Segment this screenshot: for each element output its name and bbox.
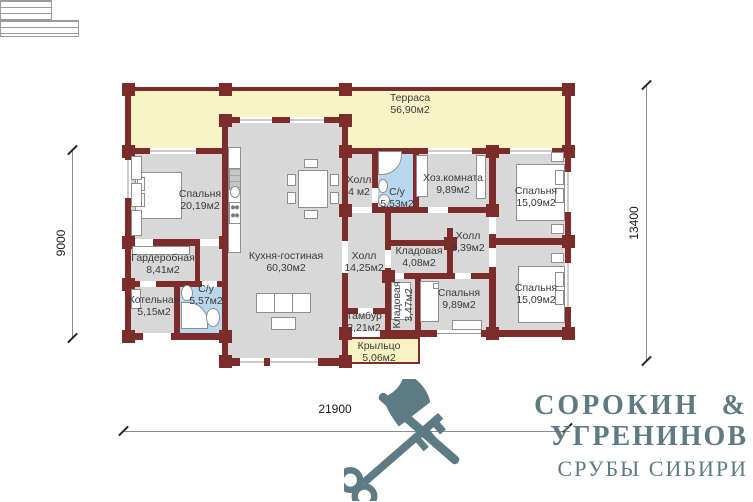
room-label-bedroom-3: Спальня9,89м2 [424,287,494,311]
log-end [219,355,232,368]
room-label-utility: Хоз.комната9,89м2 [412,172,494,196]
pillow-icon [555,170,564,185]
wall-segment [490,238,571,245]
wardrobe-icon [131,156,142,180]
dimension-line-right [646,85,647,361]
dimension-label-left: 9000 [54,220,68,266]
log-end [219,83,232,96]
room-label-boiler: Котельная5,15м2 [118,294,190,318]
room-label-storage-2: Кладовая3,47м2 [391,276,415,334]
floor-plan-drawing [0,0,753,37]
room-label-bath-2: С/у5,57м2 [186,283,226,307]
room-label-bedroom-4: Спальня15,09м2 [498,282,574,306]
brand-name-line-2: УГРЕНИНОВ [498,421,748,453]
dimension-line-left [72,150,73,338]
room-label-bedroom-2: Спальня15,09м2 [498,185,574,209]
door-opening [352,207,372,213]
steps-icon [0,0,52,20]
chair-icon [287,174,296,186]
room-label-hall-2: Холл14,25м2 [338,250,390,274]
room-label-bedroom-1: Спальня20,19м2 [162,188,238,212]
bench-icon [452,320,482,330]
window [437,330,481,337]
chair-icon [330,192,339,204]
log-end [486,145,499,158]
log-end [339,145,352,158]
log-end [486,204,499,217]
wall-segment [125,333,228,340]
log-end [219,114,232,127]
nightstand-icon [551,253,564,263]
steps-icon [0,20,79,37]
door-opening [140,281,156,287]
axe-and-key-logo-icon [344,379,492,501]
room-label-terrace: Терраса56,90м2 [350,92,470,116]
log-end [339,204,352,217]
room-label-porch: Крыльцо5,06м2 [340,340,418,364]
door-opening [143,333,171,340]
room-label-kitchen: Кухня-гостиная60,30м2 [226,250,346,274]
chair-icon [330,174,339,186]
wardrobe-icon [131,210,142,236]
window [290,117,324,123]
door-opening [428,207,448,213]
dining-table-icon [298,170,328,208]
nightstand-icon [551,224,564,234]
coffee-table-icon [271,317,296,330]
dimension-label-right: 13400 [627,197,641,249]
log-end [219,330,232,343]
chair-icon [287,192,296,204]
toilet-icon [206,308,220,327]
log-end [122,83,135,96]
log-end [562,235,575,248]
wardrobe-icon [131,183,142,207]
door-opening [133,239,153,246]
window [270,358,318,366]
nightstand-icon [551,152,564,162]
floor-plan-page: Терраса56,90м2 Спальня20,19м2 Гардеробна… [0,0,753,502]
room-label-hall-1: Холл4 м2 [340,174,378,198]
log-end [562,83,575,96]
door-opening [455,273,471,279]
brand-tagline: СРУБЫ СИБИРИ [498,456,748,482]
log-end [562,327,575,340]
window [150,148,196,154]
chair-icon [304,210,318,219]
log-end [122,330,135,343]
room-label-vestibule: Тамбур2,21м2 [340,310,388,334]
window [240,117,272,123]
brand-name-line-1: СОРОКИН & [498,390,748,422]
sofa-icon [256,293,311,313]
log-end [486,327,499,340]
window [428,148,472,154]
chair-icon [304,159,318,168]
window [240,358,264,366]
window [510,148,552,154]
room-label-storage-1: Кладовая4,08м2 [388,245,450,269]
room-label-hall-3: Холл5,39м2 [442,230,494,254]
room-label-wardrobe: Гардеробная8,41м2 [124,252,202,276]
